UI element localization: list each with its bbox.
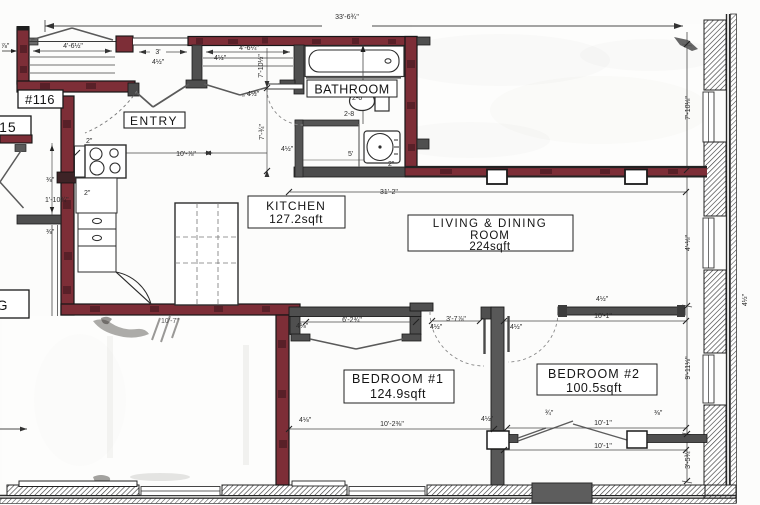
svg-text:3'-5¾": 3'-5¾"	[685, 449, 692, 469]
svg-text:LIVING & DINING: LIVING & DINING	[433, 218, 548, 230]
svg-text:4½": 4½"	[596, 295, 609, 303]
svg-text:2-8: 2-8	[344, 111, 354, 118]
svg-text:#116: #116	[25, 92, 55, 107]
svg-text:127.2sqft: 127.2sqft	[269, 212, 323, 226]
svg-text:2": 2"	[84, 190, 91, 197]
svg-text:⅜": ⅜"	[654, 410, 663, 417]
svg-text:10'-1": 10'-1"	[594, 420, 612, 427]
svg-text:⅜": ⅜"	[46, 229, 55, 236]
svg-text:9'-11⅛": 9'-11⅛"	[685, 356, 692, 380]
svg-text:124.9sqft: 124.9sqft	[370, 387, 426, 401]
svg-text:4⅛": 4⅛"	[296, 323, 309, 330]
svg-text:3': 3'	[155, 49, 160, 56]
svg-text:6'-2¾": 6'-2¾"	[342, 317, 362, 324]
svg-text:¾": ¾"	[545, 410, 554, 417]
svg-text:4½": 4½"	[510, 323, 523, 331]
svg-text:115: 115	[0, 119, 17, 135]
svg-text:2": 2"	[388, 161, 395, 168]
svg-text:4½": 4½"	[481, 415, 494, 423]
svg-text:4½": 4½"	[741, 293, 749, 306]
svg-text:KITCHEN: KITCHEN	[266, 199, 326, 213]
svg-text:NG: NG	[0, 297, 9, 313]
svg-text:BATHROOM: BATHROOM	[314, 83, 389, 97]
svg-text:⅜": ⅜"	[46, 177, 55, 184]
svg-text:10'-2⅜": 10'-2⅜"	[380, 421, 404, 428]
svg-text:BEDROOM #1: BEDROOM #1	[352, 372, 444, 386]
svg-text:⅞": ⅞"	[1, 43, 10, 50]
svg-text:7'-10½": 7'-10½"	[257, 54, 265, 78]
svg-text:4'-⅛": 4'-⅛"	[685, 235, 692, 251]
svg-text:7'-10⅛": 7'-10⅛"	[685, 96, 692, 120]
svg-text:BEDROOM #2: BEDROOM #2	[548, 367, 640, 381]
svg-text:10'-⅞": 10'-⅞"	[176, 151, 196, 158]
svg-text:4½": 4½"	[214, 54, 227, 62]
svg-text:224sqft: 224sqft	[469, 241, 511, 253]
svg-text:4½": 4½"	[430, 323, 443, 331]
svg-text:7'-¾": 7'-¾"	[259, 124, 266, 140]
svg-text:3'-7⅞": 3'-7⅞"	[446, 316, 466, 323]
svg-text:4½": 4½"	[152, 58, 165, 66]
svg-text:4½": 4½"	[281, 145, 294, 153]
svg-text:31'-2": 31'-2"	[380, 189, 398, 196]
svg-text:5': 5'	[348, 151, 353, 158]
svg-text:33'-6¾": 33'-6¾"	[335, 14, 359, 21]
svg-text:4'-6½": 4'-6½"	[63, 42, 83, 50]
svg-text:10'-1": 10'-1"	[594, 443, 612, 450]
svg-text:4⅛": 4⅛"	[299, 417, 312, 424]
svg-text:4'-6¼": 4'-6¼"	[239, 45, 259, 52]
svg-text:10'-7": 10'-7"	[161, 318, 179, 325]
svg-text:10'-1": 10'-1"	[594, 313, 612, 320]
svg-text:ENTRY: ENTRY	[130, 114, 178, 128]
svg-text:4½": 4½"	[247, 90, 260, 98]
svg-text:100.5sqft: 100.5sqft	[566, 381, 622, 395]
svg-text:2": 2"	[86, 138, 93, 145]
